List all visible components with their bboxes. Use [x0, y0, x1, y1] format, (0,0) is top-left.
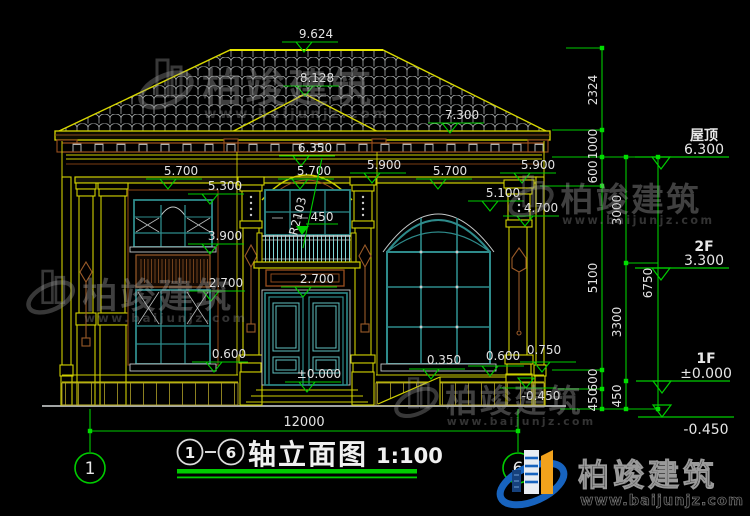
svg-text:www.baijunjz.com: www.baijunjz.com	[562, 214, 714, 227]
vdim-2324: 2324	[586, 75, 600, 106]
left-window-sill-lower	[130, 364, 216, 371]
svg-text:柏竣建筑: 柏竣建筑	[560, 181, 701, 219]
vdim-5100: 5100	[586, 263, 600, 294]
bay-column-right	[350, 177, 376, 405]
vdim-1000: 1000	[586, 129, 600, 160]
title-axis-left: 1	[185, 444, 195, 462]
balcony-slab	[254, 262, 360, 268]
level-1f-value: ±0.000	[680, 366, 732, 382]
dim-peak: 9.624	[299, 27, 333, 41]
right-arched-window	[381, 212, 496, 371]
chain-ticks	[600, 46, 660, 411]
vdim-600-top: 600	[586, 161, 600, 184]
dim-right-0600: 0.600	[486, 349, 520, 363]
dim-eave-right: 7.300	[445, 108, 479, 122]
company-logo: 柏竣建筑 www.baijunjz.com	[494, 450, 744, 513]
company-logo-name: 柏竣建筑	[578, 458, 718, 494]
dim-left-5300: 5.300	[208, 179, 242, 193]
watermark-3: 柏竣建筑 www.baijunjz.com	[24, 271, 248, 325]
title-axis-right: 6	[226, 444, 236, 462]
left-window-sill-upper	[130, 247, 216, 252]
dim-left-0600: 0.600	[212, 347, 246, 361]
title-scale: 1:100	[376, 444, 443, 468]
title-name: 轴立面图	[248, 438, 368, 471]
svg-text:1: 1	[85, 459, 96, 479]
dim-right-0750: 0.750	[527, 343, 561, 357]
balcony-railing	[259, 235, 353, 262]
dim-center-5700: 5.700	[297, 164, 331, 178]
level-roof-value: 6.300	[684, 142, 724, 158]
vdim-450-a: 450	[586, 389, 600, 412]
dim-railing-height: 450	[311, 210, 334, 224]
cad-elevation-screenshot: 9.624 8.128 7.300 6.350 5.900 5.700 5.70…	[0, 0, 750, 516]
vdim-3300: 3300	[610, 307, 624, 338]
svg-text:www.baijunjz.com: www.baijunjz.com	[204, 106, 390, 122]
vdim-6750: 6750	[641, 268, 655, 299]
dim-right-5700: 5.700	[433, 164, 467, 178]
title-underline-thin	[177, 477, 417, 479]
level-1f-label: 1F	[696, 351, 715, 367]
dim-left-3900: 3.900	[208, 229, 242, 243]
title-underline-thick	[177, 469, 417, 474]
axis-bubble-1: 1	[75, 453, 105, 483]
dim-overall-width: 12000	[283, 415, 324, 430]
dim-center-zero: ±0.000	[297, 367, 341, 381]
level-2f-value: 3.300	[684, 253, 724, 269]
vdim-600-bottom: 600	[586, 369, 600, 392]
level-ground-value: -0.450	[683, 422, 728, 438]
dim-right-5900: 5.900	[521, 158, 555, 172]
company-logo-url: www.baijunjz.com	[580, 493, 744, 509]
svg-text:www.baijunjz.com: www.baijunjz.com	[447, 415, 596, 428]
dim-left-5700: 5.700	[164, 164, 198, 178]
drawing-title: 1 6 轴立面图 1:100	[177, 438, 443, 478]
dim-arch-top: 6.350	[298, 141, 332, 155]
elevation-drawing: 9.624 8.128 7.300 6.350 5.900 5.700 5.70…	[0, 0, 750, 516]
svg-text:www.baijunjz.com: www.baijunjz.com	[84, 311, 248, 325]
dim-right-0350: 0.350	[427, 353, 461, 367]
dim-left-5900: 5.900	[367, 158, 401, 172]
vdim-450-b: 450	[610, 385, 624, 408]
dim-center-2700: 2.700	[300, 272, 334, 286]
